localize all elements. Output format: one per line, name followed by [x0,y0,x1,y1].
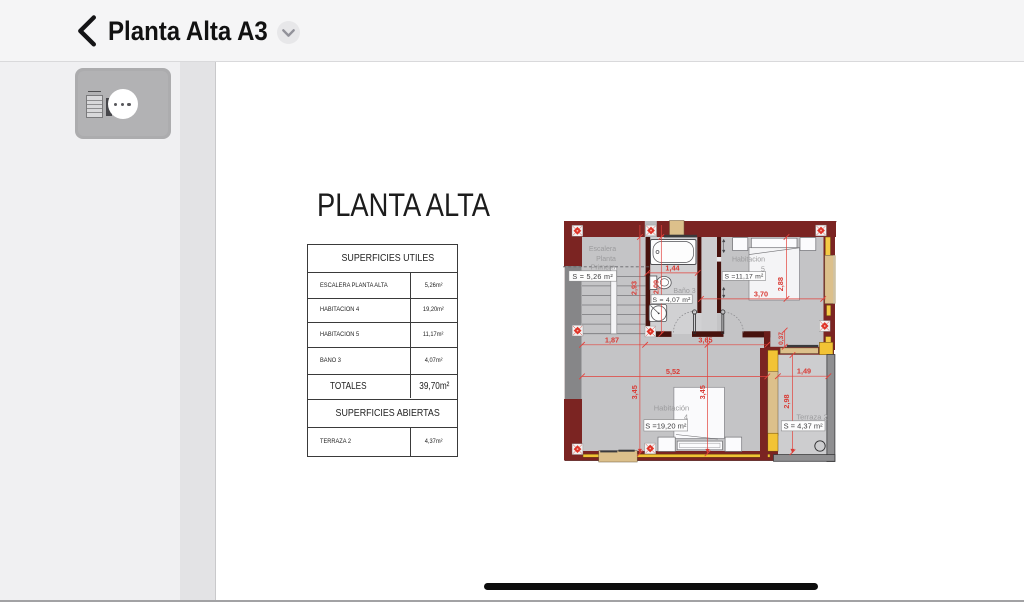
svg-text:Escalera: Escalera [589,246,616,253]
svg-text:1,49: 1,49 [797,367,811,376]
svg-text:1,87: 1,87 [605,335,619,344]
svg-text:S =19,20 m²: S =19,20 m² [645,421,687,430]
svg-text:3,65: 3,65 [698,335,712,344]
svg-text:5,52: 5,52 [666,367,680,376]
svg-text:0,37: 0,37 [778,332,785,345]
svg-text:3,45: 3,45 [698,385,707,399]
svg-text:3,70: 3,70 [754,290,768,299]
svg-text:2,09: 2,09 [652,280,661,294]
svg-text:Baño 3: Baño 3 [673,288,695,295]
svg-text:Habitación: Habitación [654,404,689,413]
svg-text:Planta: Planta [596,256,616,263]
svg-text:Primera: Primera [591,264,616,271]
svg-text:Terraza 2: Terraza 2 [796,413,827,422]
svg-text:S = 4,07 m²: S = 4,07 m² [653,297,692,304]
svg-text:S = 5,26 m²: S = 5,26 m² [572,272,613,281]
svg-text:2,98: 2,98 [782,394,791,408]
svg-text:S =11,17 m²: S =11,17 m² [725,274,764,281]
svg-text:3,45: 3,45 [630,385,639,399]
svg-text:1,44: 1,44 [665,264,680,273]
svg-text:2,93: 2,93 [630,281,639,295]
svg-text:S = 4,37 m²: S = 4,37 m² [784,422,823,431]
svg-text:Habitacion: Habitacion [732,256,765,263]
svg-text:2,88: 2,88 [776,277,785,291]
